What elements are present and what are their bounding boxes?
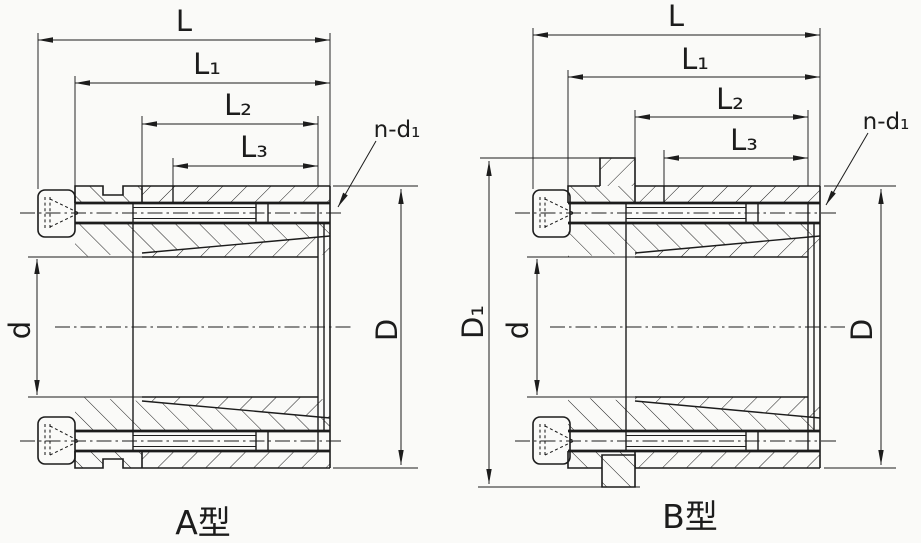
hatch-region [142,451,330,468]
dim-label-D1: D₁ [456,305,490,339]
dim-flange-D1-b: D₁ [456,158,640,487]
drawing-type-a: L L₁ L₂ L₃ n-d₁ d D A型 [3,4,420,542]
dim-label-L1: L₁ [681,42,709,76]
hatch-region [635,186,820,203]
hatch-region [142,186,330,203]
bolt-callout-label: n-d₁ [863,109,910,135]
dim-label-L: L [668,0,684,33]
dim-label-L2: L₂ [224,88,252,122]
length-dimensions-a: L L₁ L₂ L₃ [38,4,330,203]
hatch-region [635,451,820,468]
dim-label-L3: L₃ [240,130,268,164]
length-dimensions-b: L L₁ L₂ L₃ [533,0,820,203]
locking-assembly-drawing: L L₁ L₂ L₃ n-d₁ d D A型 [0,0,921,543]
dim-label-d: d [501,321,535,339]
bolt-callout-label: n-d₁ [374,117,421,143]
dim-bore-d-a: d [3,257,142,397]
bolt-callout-a: n-d₁ [338,117,420,207]
dim-label-D: D [845,319,879,341]
bolt-callout-b: n-d₁ [826,109,909,205]
dim-label-L: L [176,4,192,38]
caption-type-b: B型 [662,497,718,536]
flange-tab-bottom-b [602,455,635,487]
dim-label-L2: L₂ [716,82,744,116]
dim-label-L1: L₁ [193,47,221,81]
hatch-region [568,186,635,203]
dim-label-L3: L₃ [730,123,758,157]
dim-label-d: d [3,321,37,339]
flange-tab-top-b [600,158,635,186]
drawing-type-b: L L₁ L₂ L₃ n-d₁ d D₁ D B型 [456,0,909,536]
dim-label-D: D [370,319,404,341]
caption-type-a: A型 [175,503,231,542]
